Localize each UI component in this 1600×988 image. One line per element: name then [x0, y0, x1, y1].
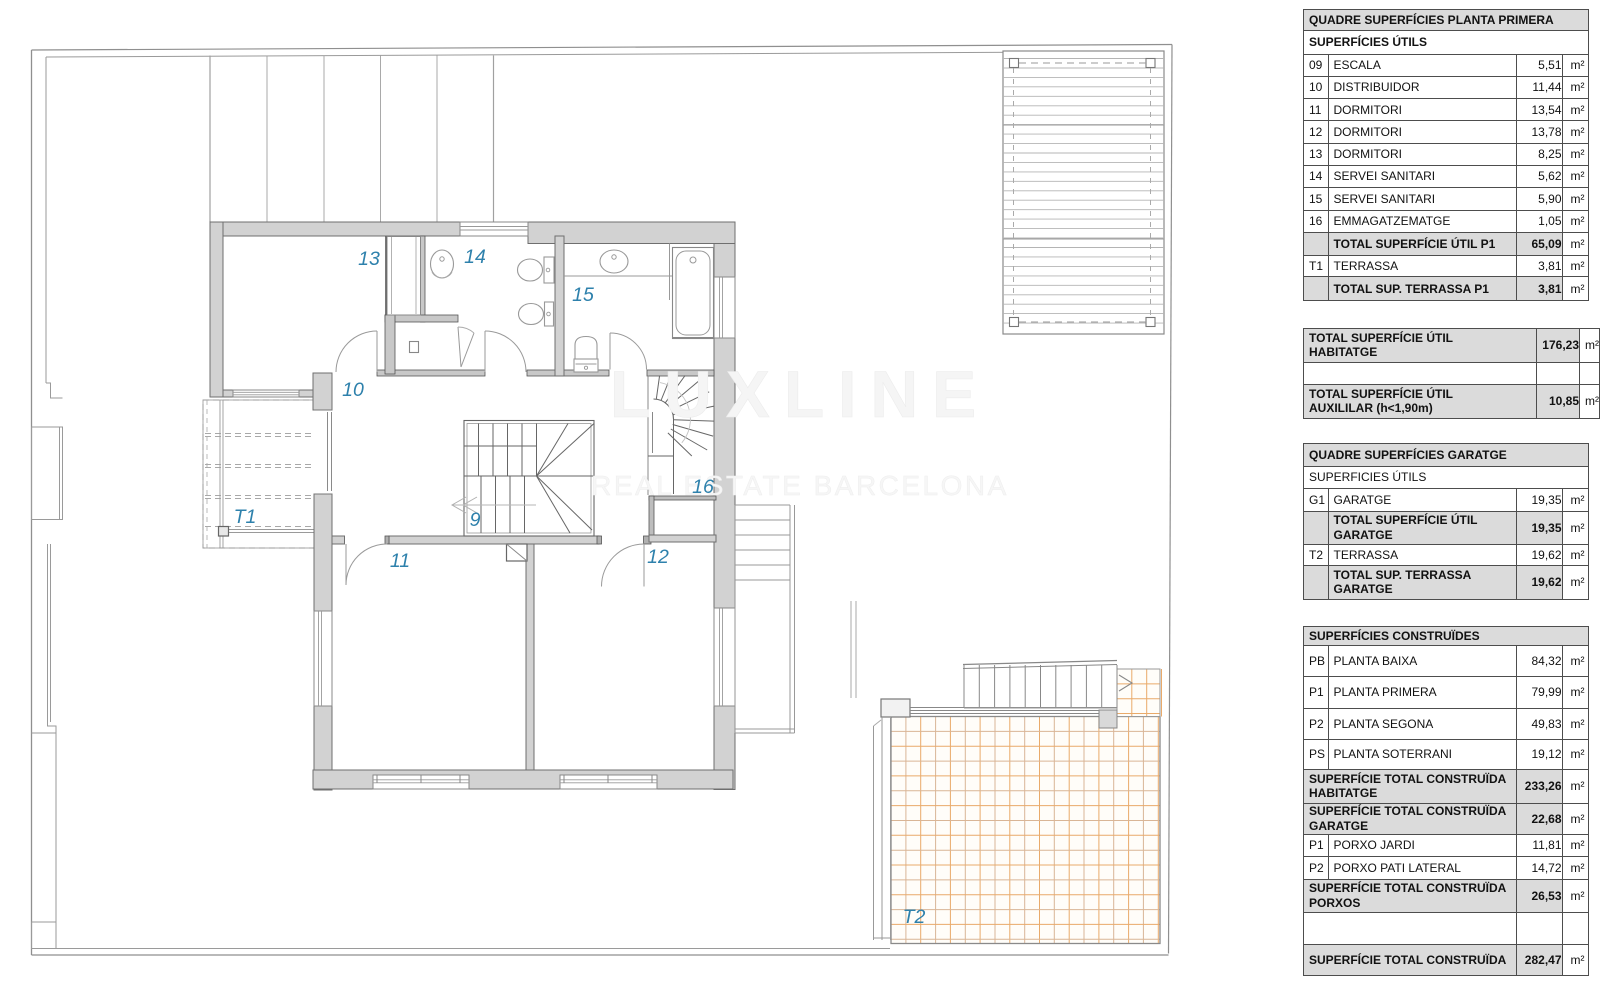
svg-text:LUXLINE: LUXLINE: [610, 357, 990, 431]
svg-text:15: 15: [572, 284, 594, 306]
svg-text:13: 13: [358, 248, 380, 270]
svg-text:10: 10: [342, 379, 364, 401]
svg-text:11: 11: [390, 550, 410, 572]
svg-text:9: 9: [470, 509, 481, 531]
svg-text:REAL ESTATE BARCELONA: REAL ESTATE BARCELONA: [591, 470, 1009, 501]
svg-text:12: 12: [647, 546, 669, 568]
svg-text:16: 16: [692, 476, 714, 498]
svg-text:T2: T2: [903, 906, 926, 928]
svg-text:14: 14: [464, 246, 486, 268]
svg-text:T1: T1: [234, 506, 257, 528]
